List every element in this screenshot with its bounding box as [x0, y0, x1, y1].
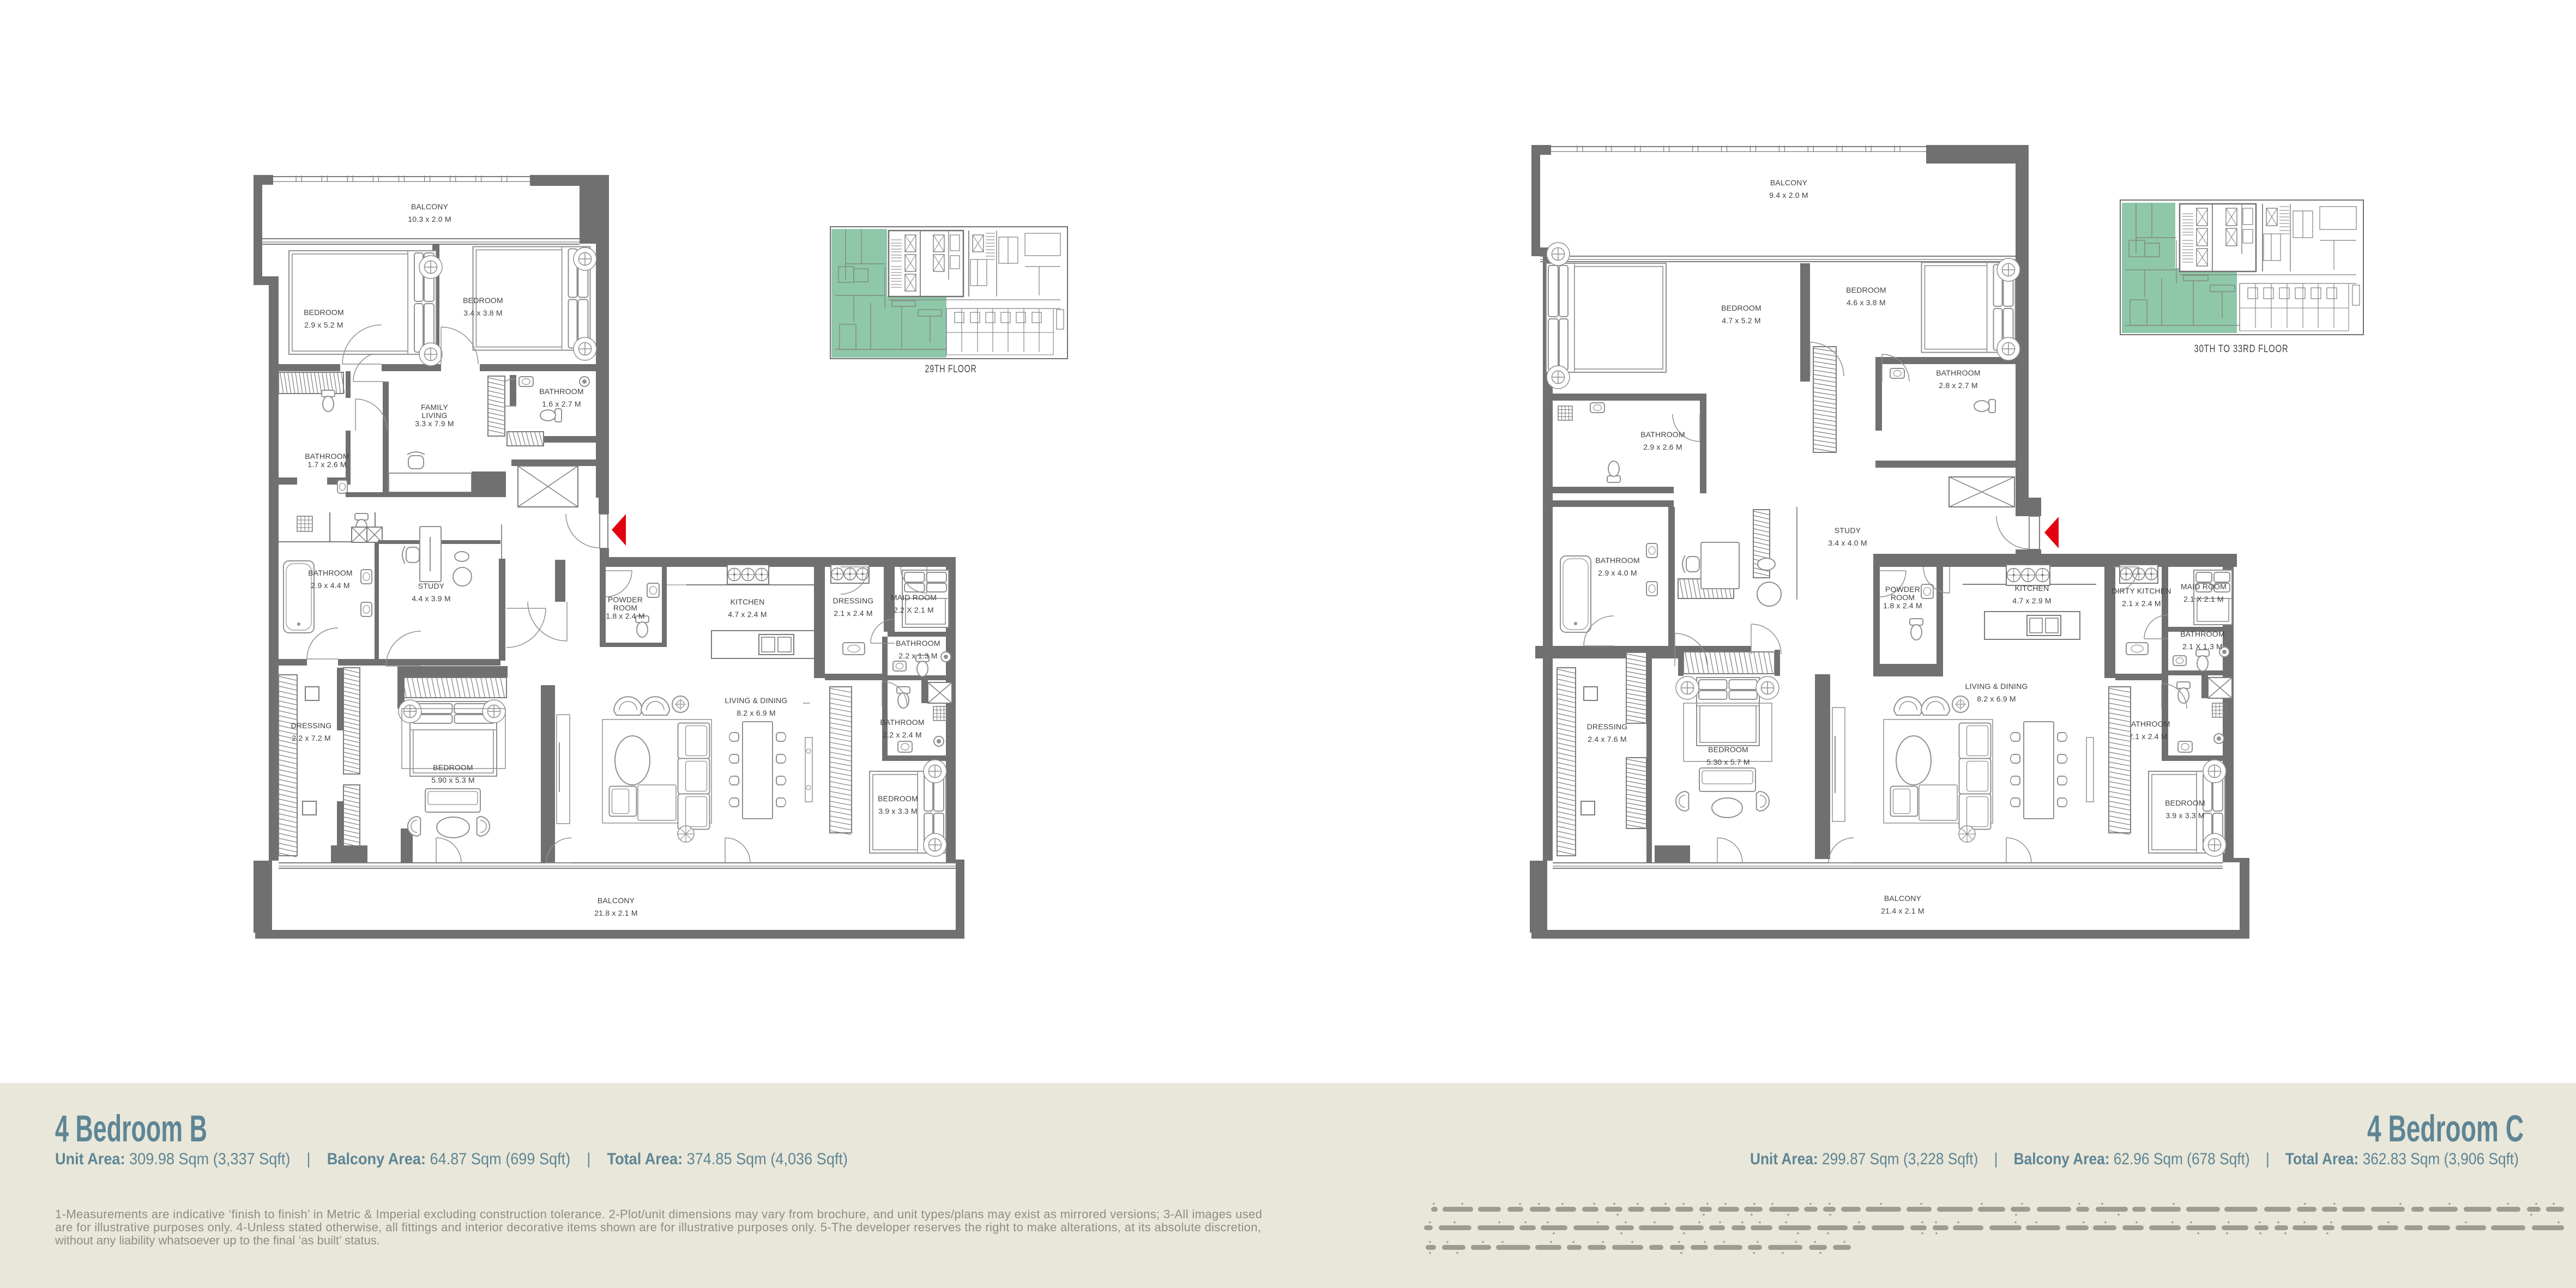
svg-text:STUDY: STUDY: [418, 582, 445, 590]
svg-text:LIVING & DINING: LIVING & DINING: [725, 696, 787, 705]
svg-text:BEDROOM: BEDROOM: [1708, 745, 1748, 754]
svg-text:1.7 x 2.6 M: 1.7 x 2.6 M: [307, 460, 346, 469]
svg-text:2.2 x 7.2 M: 2.2 x 7.2 M: [292, 734, 330, 742]
svg-text:ROOM: ROOM: [1891, 593, 1915, 602]
svg-text:2.9 x 5.2 M: 2.9 x 5.2 M: [304, 321, 343, 329]
svg-text:DRESSING: DRESSING: [1587, 722, 1628, 731]
svg-text:BATHROOM: BATHROOM: [2126, 719, 2170, 728]
svg-text:2.8 x 2.7 M: 2.8 x 2.7 M: [1939, 381, 1977, 390]
svg-text:BEDROOM: BEDROOM: [433, 763, 473, 772]
svg-text:MAID ROOM: MAID ROOM: [2181, 582, 2227, 591]
svg-text:21.8 x 2.1 M: 21.8 x 2.1 M: [594, 909, 637, 917]
svg-text:BEDROOM: BEDROOM: [304, 308, 344, 317]
svg-text:KITCHEN: KITCHEN: [731, 597, 765, 606]
svg-text:2.1 x 2.4 M: 2.1 x 2.4 M: [2128, 732, 2167, 741]
svg-text:BATHROOM: BATHROOM: [1936, 368, 1980, 377]
svg-text:8.2 x 6.9 M: 8.2 x 6.9 M: [737, 709, 775, 717]
svg-text:BATHROOM: BATHROOM: [1640, 430, 1685, 439]
svg-text:DRESSING: DRESSING: [291, 721, 332, 730]
svg-text:BATHROOM: BATHROOM: [896, 639, 940, 648]
svg-text:2.1 X 2.1 M: 2.1 X 2.1 M: [2183, 595, 2224, 603]
svg-text:Unit Area: 299.87 Sqm (3,228 S: Unit Area: 299.87 Sqm (3,228 Sqft) | Bal…: [1750, 1150, 2519, 1168]
svg-text:POWDER: POWDER: [608, 595, 643, 604]
svg-text:9.4 x 2.0 M: 9.4 x 2.0 M: [1769, 191, 1808, 199]
svg-text:3.9 x 3.3 M: 3.9 x 3.3 M: [2165, 811, 2204, 820]
svg-text:1.8 x 2.4 M: 1.8 x 2.4 M: [1883, 601, 1922, 610]
svg-text:4.7 x 5.2 M: 4.7 x 5.2 M: [1722, 316, 1760, 325]
svg-text:10.3 x 2.0 M: 10.3 x 2.0 M: [408, 215, 451, 223]
svg-text:without any liability whatsoev: without any liability whatsoever up to t…: [55, 1233, 380, 1247]
svg-text:1.8 x 2.4 M: 1.8 x 2.4 M: [606, 612, 644, 620]
svg-text:2.9 x 2.6 M: 2.9 x 2.6 M: [1643, 443, 1682, 451]
svg-text:29TH FLOOR: 29TH FLOOR: [925, 364, 977, 375]
svg-text:BALCONY: BALCONY: [598, 896, 635, 905]
svg-text:2.2 x 1.3 M: 2.2 x 1.3 M: [898, 651, 937, 660]
svg-text:4 Bedroom C: 4 Bedroom C: [2367, 1108, 2524, 1150]
svg-text:BEDROOM: BEDROOM: [463, 296, 503, 305]
svg-text:2.4 x 7.6 M: 2.4 x 7.6 M: [1588, 735, 1626, 743]
svg-text:BALCONY: BALCONY: [411, 202, 449, 211]
svg-text:BATHROOM: BATHROOM: [308, 569, 352, 577]
svg-text:4.7 x 2.9 M: 4.7 x 2.9 M: [2012, 596, 2051, 605]
svg-text:BEDROOM: BEDROOM: [1846, 286, 1886, 294]
svg-text:5.90 x 5.3 M: 5.90 x 5.3 M: [431, 776, 474, 784]
svg-text:1-Measurements are indicative: 1-Measurements are indicative ‘finish to…: [55, 1207, 1262, 1221]
svg-text:BEDROOM: BEDROOM: [1721, 304, 1761, 312]
svg-text:2.2 X 2.1 M: 2.2 X 2.1 M: [894, 606, 934, 614]
svg-text:3.9 x 3.3 M: 3.9 x 3.3 M: [878, 807, 917, 815]
svg-text:21.4 x 2.1 M: 21.4 x 2.1 M: [1881, 906, 1924, 915]
svg-text:3.4 x 3.8 M: 3.4 x 3.8 M: [463, 309, 502, 317]
svg-text:2.1 x 2.4 M: 2.1 x 2.4 M: [834, 609, 872, 618]
svg-text:BATHROOM: BATHROOM: [305, 452, 349, 461]
svg-text:2.1 X 1.3 M: 2.1 X 1.3 M: [2182, 642, 2223, 651]
svg-text:8.2 x 6.9 M: 8.2 x 6.9 M: [1977, 694, 2016, 703]
svg-text:BATHROOM: BATHROOM: [880, 718, 924, 727]
svg-text:BATHROOM: BATHROOM: [2180, 630, 2224, 638]
svg-text:BEDROOM: BEDROOM: [2165, 799, 2205, 807]
svg-text:LIVING: LIVING: [421, 411, 447, 420]
svg-text:4.6 x 3.8 M: 4.6 x 3.8 M: [1847, 298, 1885, 307]
svg-text:LIVING & DINING: LIVING & DINING: [1965, 682, 2028, 691]
svg-text:5.30 x 5.7 M: 5.30 x 5.7 M: [1706, 758, 1749, 766]
svg-text:MAID ROOM: MAID ROOM: [891, 593, 937, 602]
svg-text:STUDY: STUDY: [1835, 526, 1861, 535]
svg-text:BALCONY: BALCONY: [1770, 178, 1808, 187]
svg-text:2.1 x 2.4 M: 2.1 x 2.4 M: [2122, 599, 2161, 608]
svg-text:BATHROOM: BATHROOM: [1595, 556, 1639, 565]
svg-text:2.9 x 4.4 M: 2.9 x 4.4 M: [311, 581, 349, 590]
svg-text:DRESSING: DRESSING: [833, 596, 874, 605]
svg-text:BEDROOM: BEDROOM: [878, 794, 918, 803]
svg-text:2.2 x 2.4 M: 2.2 x 2.4 M: [883, 730, 921, 739]
svg-text:BATHROOM: BATHROOM: [539, 387, 583, 396]
svg-text:FAMILY: FAMILY: [421, 403, 448, 412]
svg-text:1.6 x 2.7 M: 1.6 x 2.7 M: [542, 400, 581, 408]
svg-text:are for illustrative purposes: are for illustrative purposes only. 4-Un…: [55, 1220, 1261, 1234]
svg-text:2.9 x 4.0 M: 2.9 x 4.0 M: [1598, 569, 1637, 577]
svg-text:30TH TO 33RD FLOOR: 30TH TO 33RD FLOOR: [2194, 343, 2289, 355]
svg-text:Unit Area: 309.98 Sqm (3,337 S: Unit Area: 309.98 Sqm (3,337 Sqft) | Bal…: [55, 1150, 848, 1168]
svg-text:BALCONY: BALCONY: [1884, 894, 1922, 903]
svg-text:POWDER: POWDER: [1885, 585, 1920, 594]
svg-text:4 Bedroom B: 4 Bedroom B: [55, 1108, 207, 1150]
svg-text:3.4 x 4.0 M: 3.4 x 4.0 M: [1828, 539, 1867, 547]
svg-text:3.3 x 7.9 M: 3.3 x 7.9 M: [415, 419, 454, 428]
svg-text:4.7 x 2.4 M: 4.7 x 2.4 M: [728, 610, 767, 619]
svg-text:ROOM: ROOM: [613, 603, 637, 612]
svg-text:4.4 x 3.9 M: 4.4 x 3.9 M: [412, 594, 450, 603]
svg-text:KITCHEN: KITCHEN: [2015, 584, 2049, 592]
